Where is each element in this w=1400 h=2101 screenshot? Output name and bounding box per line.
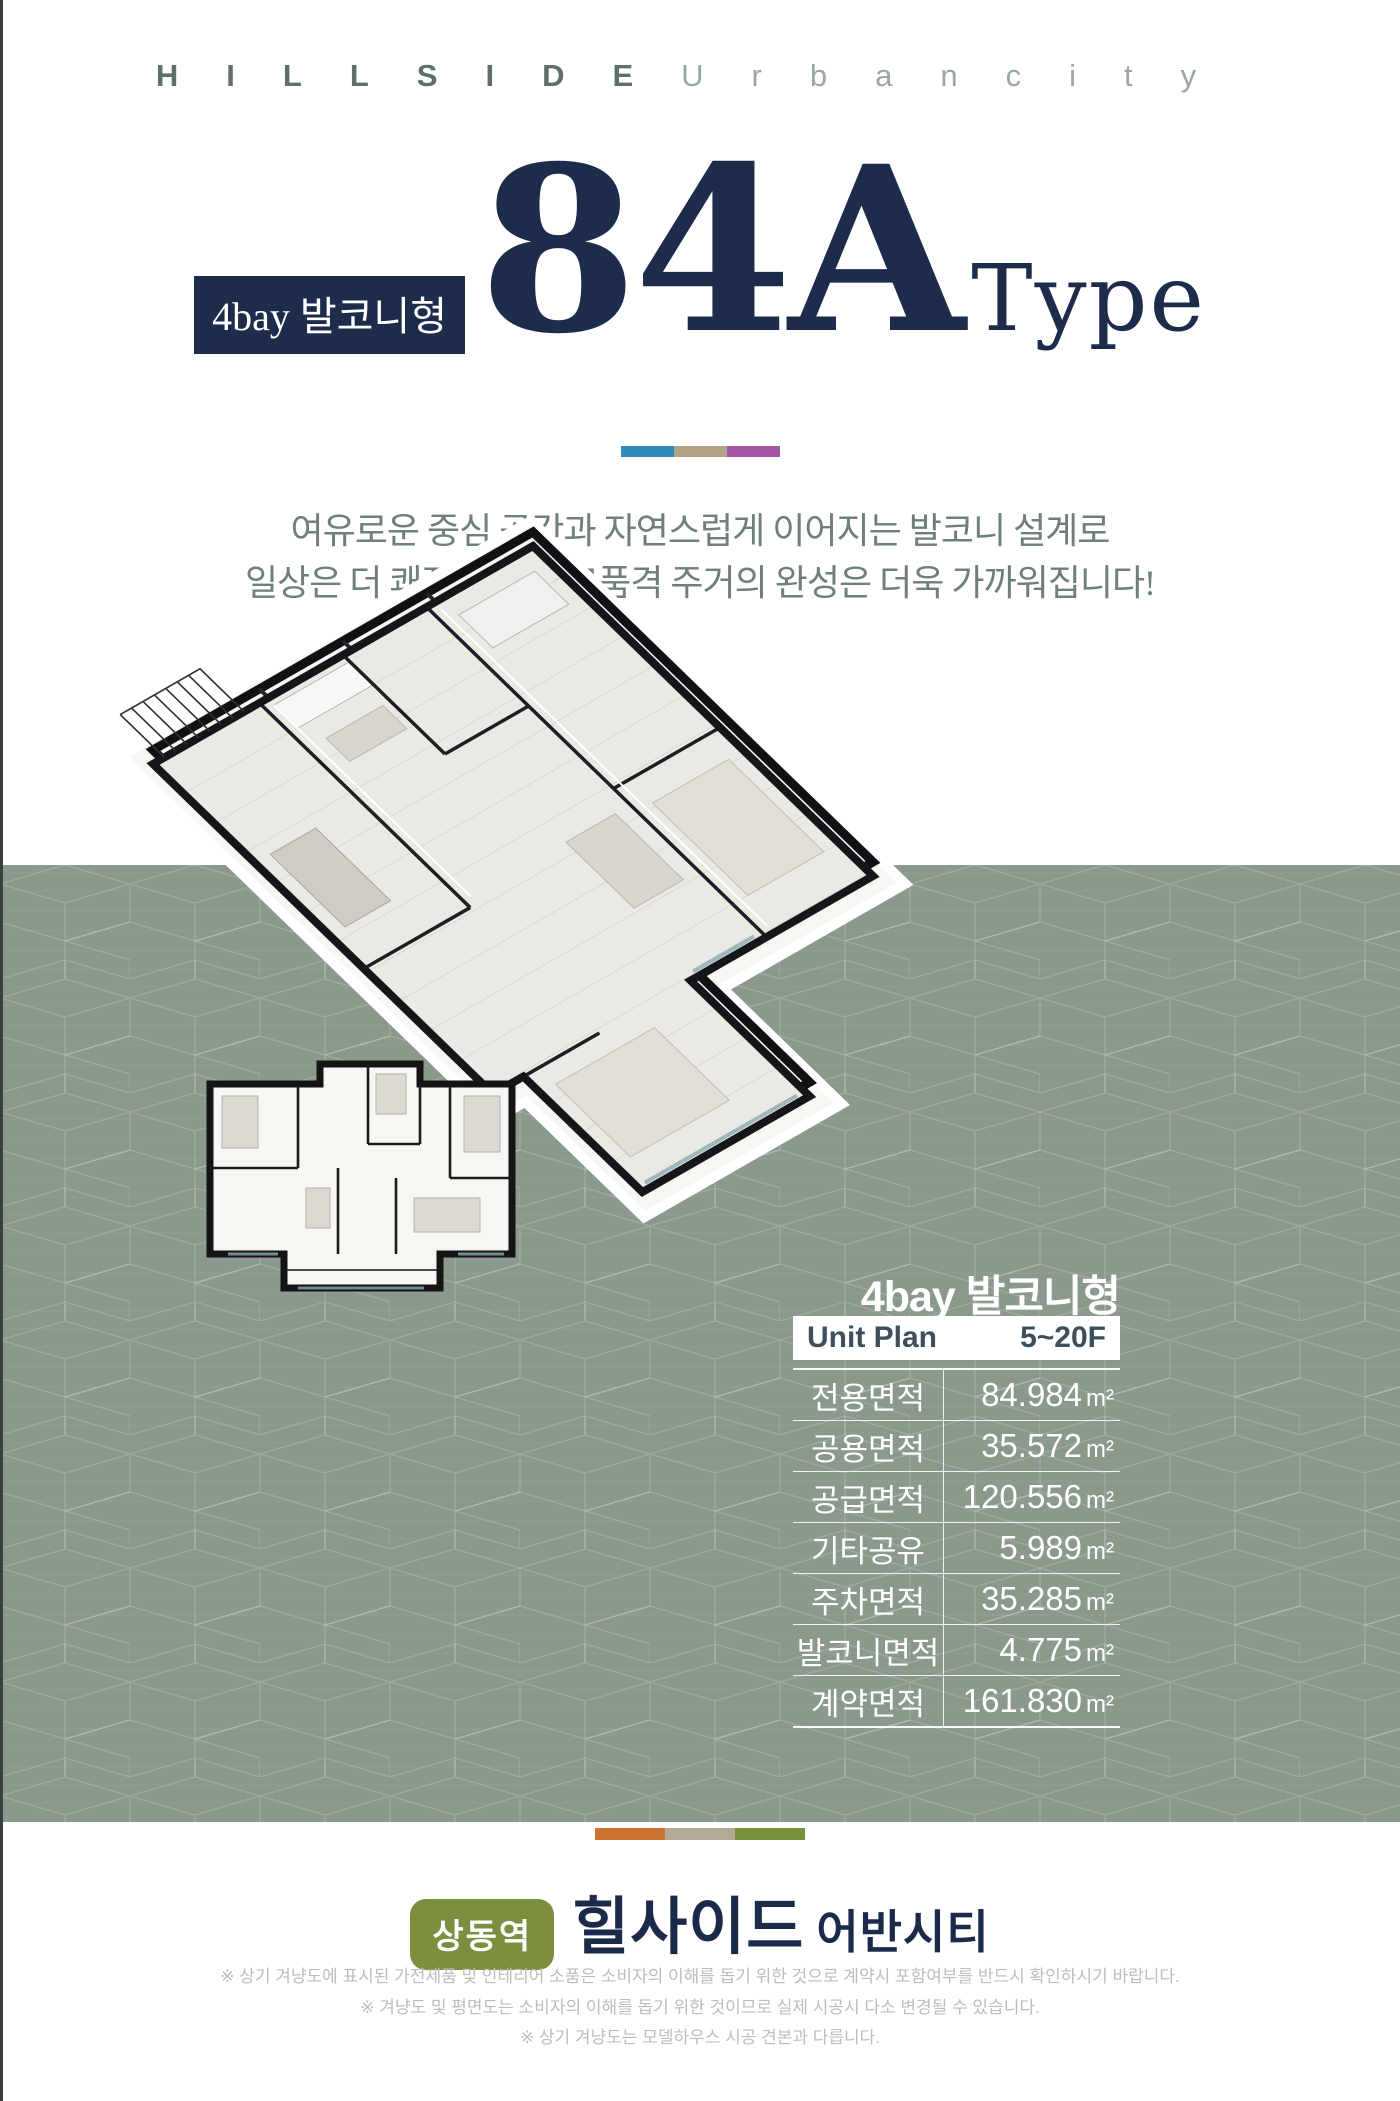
divider-segment-orange <box>595 1828 665 1840</box>
area-label: 기타공유 <box>793 1523 944 1573</box>
disclaimer-line-2: ※ 겨냥도 및 평면도는 소비자의 이해를 돕기 위한 것이므로 실제 시공시 … <box>0 1993 1400 2024</box>
area-label: 발코니면적 <box>793 1625 944 1675</box>
brand-header: HILLSIDE Urbancity <box>0 58 1400 94</box>
area-unit: m² <box>1086 1691 1114 1718</box>
area-value: 35.285m² <box>944 1580 1120 1618</box>
bay-type-badge: 4bay 발코니형 <box>194 276 465 354</box>
area-value: 5.989m² <box>944 1529 1120 1567</box>
disclaimer-line-1: ※ 상기 겨냥도에 표시된 가전제품 및 인테리어 소품은 소비자의 이해를 돕… <box>0 1962 1400 1993</box>
table-row: 주차면적 35.285m² <box>793 1574 1120 1625</box>
area-unit: m² <box>1086 1436 1114 1463</box>
area-table: 전용면적 84.984m² 공용면적 35.572m² 공급면적 120.556… <box>793 1368 1120 1728</box>
area-unit: m² <box>1086 1538 1114 1565</box>
divider-segment-green <box>735 1828 805 1840</box>
divider-segment-gray <box>665 1828 735 1840</box>
table-row: 공용면적 35.572m² <box>793 1421 1120 1472</box>
table-row: 전용면적 84.984m² <box>793 1370 1120 1421</box>
logo-hillside-text: 힐사이드 <box>572 1876 804 1966</box>
area-label: 공용면적 <box>793 1421 944 1471</box>
area-unit: m² <box>1086 1589 1114 1616</box>
area-label: 공급면적 <box>793 1472 944 1522</box>
area-unit: m² <box>1086 1640 1114 1667</box>
poster-page: HILLSIDE Urbancity 4bay 발코니형84AType 여유로운… <box>0 0 1400 2101</box>
station-badge: 상동역 <box>410 1899 554 1970</box>
bottom-divider-bar <box>0 1828 1400 1840</box>
unit-plan-floors: 5~20F <box>1020 1321 1106 1355</box>
table-row: 발코니면적 4.775m² <box>793 1625 1120 1676</box>
divider-segment-tan <box>674 446 727 457</box>
area-label: 주차면적 <box>793 1574 944 1624</box>
disclaimer-block: ※ 상기 겨냥도에 표시된 가전제품 및 인테리어 소품은 소비자의 이해를 돕… <box>0 1962 1400 2054</box>
area-label: 전용면적 <box>793 1370 944 1420</box>
area-value: 120.556m² <box>944 1478 1120 1516</box>
area-value: 4.775m² <box>944 1631 1120 1669</box>
unit-type-number: 84A <box>479 116 961 384</box>
floorplan-2d-image <box>188 1048 533 1310</box>
footer-logo: 상동역 힐사이드 어반시티 <box>0 1876 1400 1970</box>
area-value: 161.830m² <box>944 1682 1120 1720</box>
table-row: 계약면적 161.830m² <box>793 1676 1120 1726</box>
brand-hillside-text: HILLSIDE <box>156 58 681 94</box>
logo-urbancity-text: 어반시티 <box>816 1896 989 1962</box>
area-value: 35.572m² <box>944 1427 1120 1465</box>
unit-type-suffix: Type <box>971 245 1206 352</box>
area-unit: m² <box>1086 1487 1114 1514</box>
divider-segment-purple <box>727 446 780 457</box>
area-label: 계약면적 <box>793 1676 944 1726</box>
title-block: 4bay 발코니형84AType <box>0 150 1400 354</box>
unit-plan-heading: 4bay 발코니형 <box>770 1262 1120 1324</box>
divider-segment-blue <box>621 446 674 457</box>
unit-plan-bar: Unit Plan 5~20F <box>793 1316 1120 1360</box>
unit-plan-label: Unit Plan <box>807 1321 937 1355</box>
area-unit: m² <box>1086 1385 1114 1412</box>
disclaimer-line-3: ※ 상기 겨냥도는 모델하우스 시공 견본과 다릅니다. <box>0 2023 1400 2054</box>
top-divider-bar <box>0 446 1400 457</box>
table-row: 기타공유 5.989m² <box>793 1523 1120 1574</box>
brand-urbancity-text: Urbancity <box>681 58 1244 94</box>
area-value: 84.984m² <box>944 1376 1120 1414</box>
table-row: 공급면적 120.556m² <box>793 1472 1120 1523</box>
